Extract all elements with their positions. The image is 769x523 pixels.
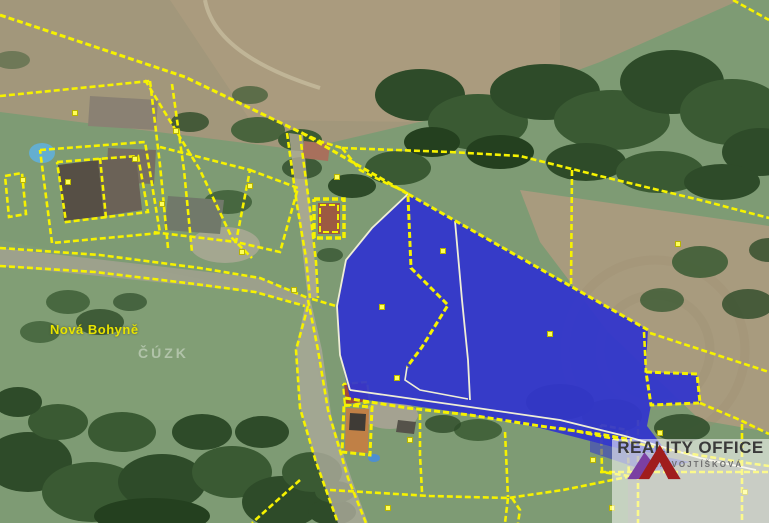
- parcel-marker: [174, 129, 179, 134]
- tree-cluster: [46, 290, 90, 314]
- place-label: Nová Bohyně: [50, 322, 139, 337]
- parcel-marker: [591, 458, 596, 463]
- parcel-marker: [408, 438, 413, 443]
- parcel-marker: [395, 376, 400, 381]
- tree-cluster: [317, 248, 343, 262]
- tree-cluster: [466, 135, 534, 169]
- parcel-marker: [386, 506, 391, 511]
- parcel-marker: [658, 431, 663, 436]
- reality-office-watermark: REALITY OFFICE JANA VOJTÍŠKOVÁ: [612, 439, 769, 523]
- building-roof: [349, 413, 366, 431]
- building-roof: [318, 203, 340, 234]
- parcel-marker: [292, 288, 297, 293]
- building-roof: [302, 141, 330, 161]
- parcel-marker: [335, 175, 340, 180]
- parcel-marker: [133, 157, 138, 162]
- parcel-marker: [676, 242, 681, 247]
- parcel-marker: [240, 250, 245, 255]
- building-roof: [88, 96, 158, 130]
- cuzk-watermark: ČÚZK: [138, 345, 189, 361]
- tree-cluster: [684, 164, 760, 200]
- tree-cluster: [113, 293, 147, 311]
- tree-cluster: [454, 419, 502, 441]
- tree-cluster: [640, 288, 684, 312]
- tree-cluster: [88, 412, 156, 452]
- parcel-marker: [66, 180, 71, 185]
- tree-cluster: [172, 414, 232, 450]
- map-canvas[interactable]: Nová Bohyně ČÚZK REALITY OFFICE JANA VOJ…: [0, 0, 769, 523]
- tree-cluster: [672, 246, 728, 278]
- tree-cluster: [231, 117, 285, 143]
- parcel-marker: [21, 178, 26, 183]
- tree-cluster: [235, 416, 289, 448]
- parcel-marker: [73, 111, 78, 116]
- parcel-marker: [380, 305, 385, 310]
- reality-office-logo-icon: [612, 441, 696, 481]
- parcel-marker: [441, 249, 446, 254]
- tree-cluster: [365, 151, 431, 185]
- tree-cluster: [425, 415, 461, 433]
- tree-cluster: [546, 143, 626, 181]
- building-roof: [396, 420, 416, 434]
- parcel-marker: [548, 332, 553, 337]
- parcel-marker: [160, 202, 165, 207]
- parcel-marker: [248, 184, 253, 189]
